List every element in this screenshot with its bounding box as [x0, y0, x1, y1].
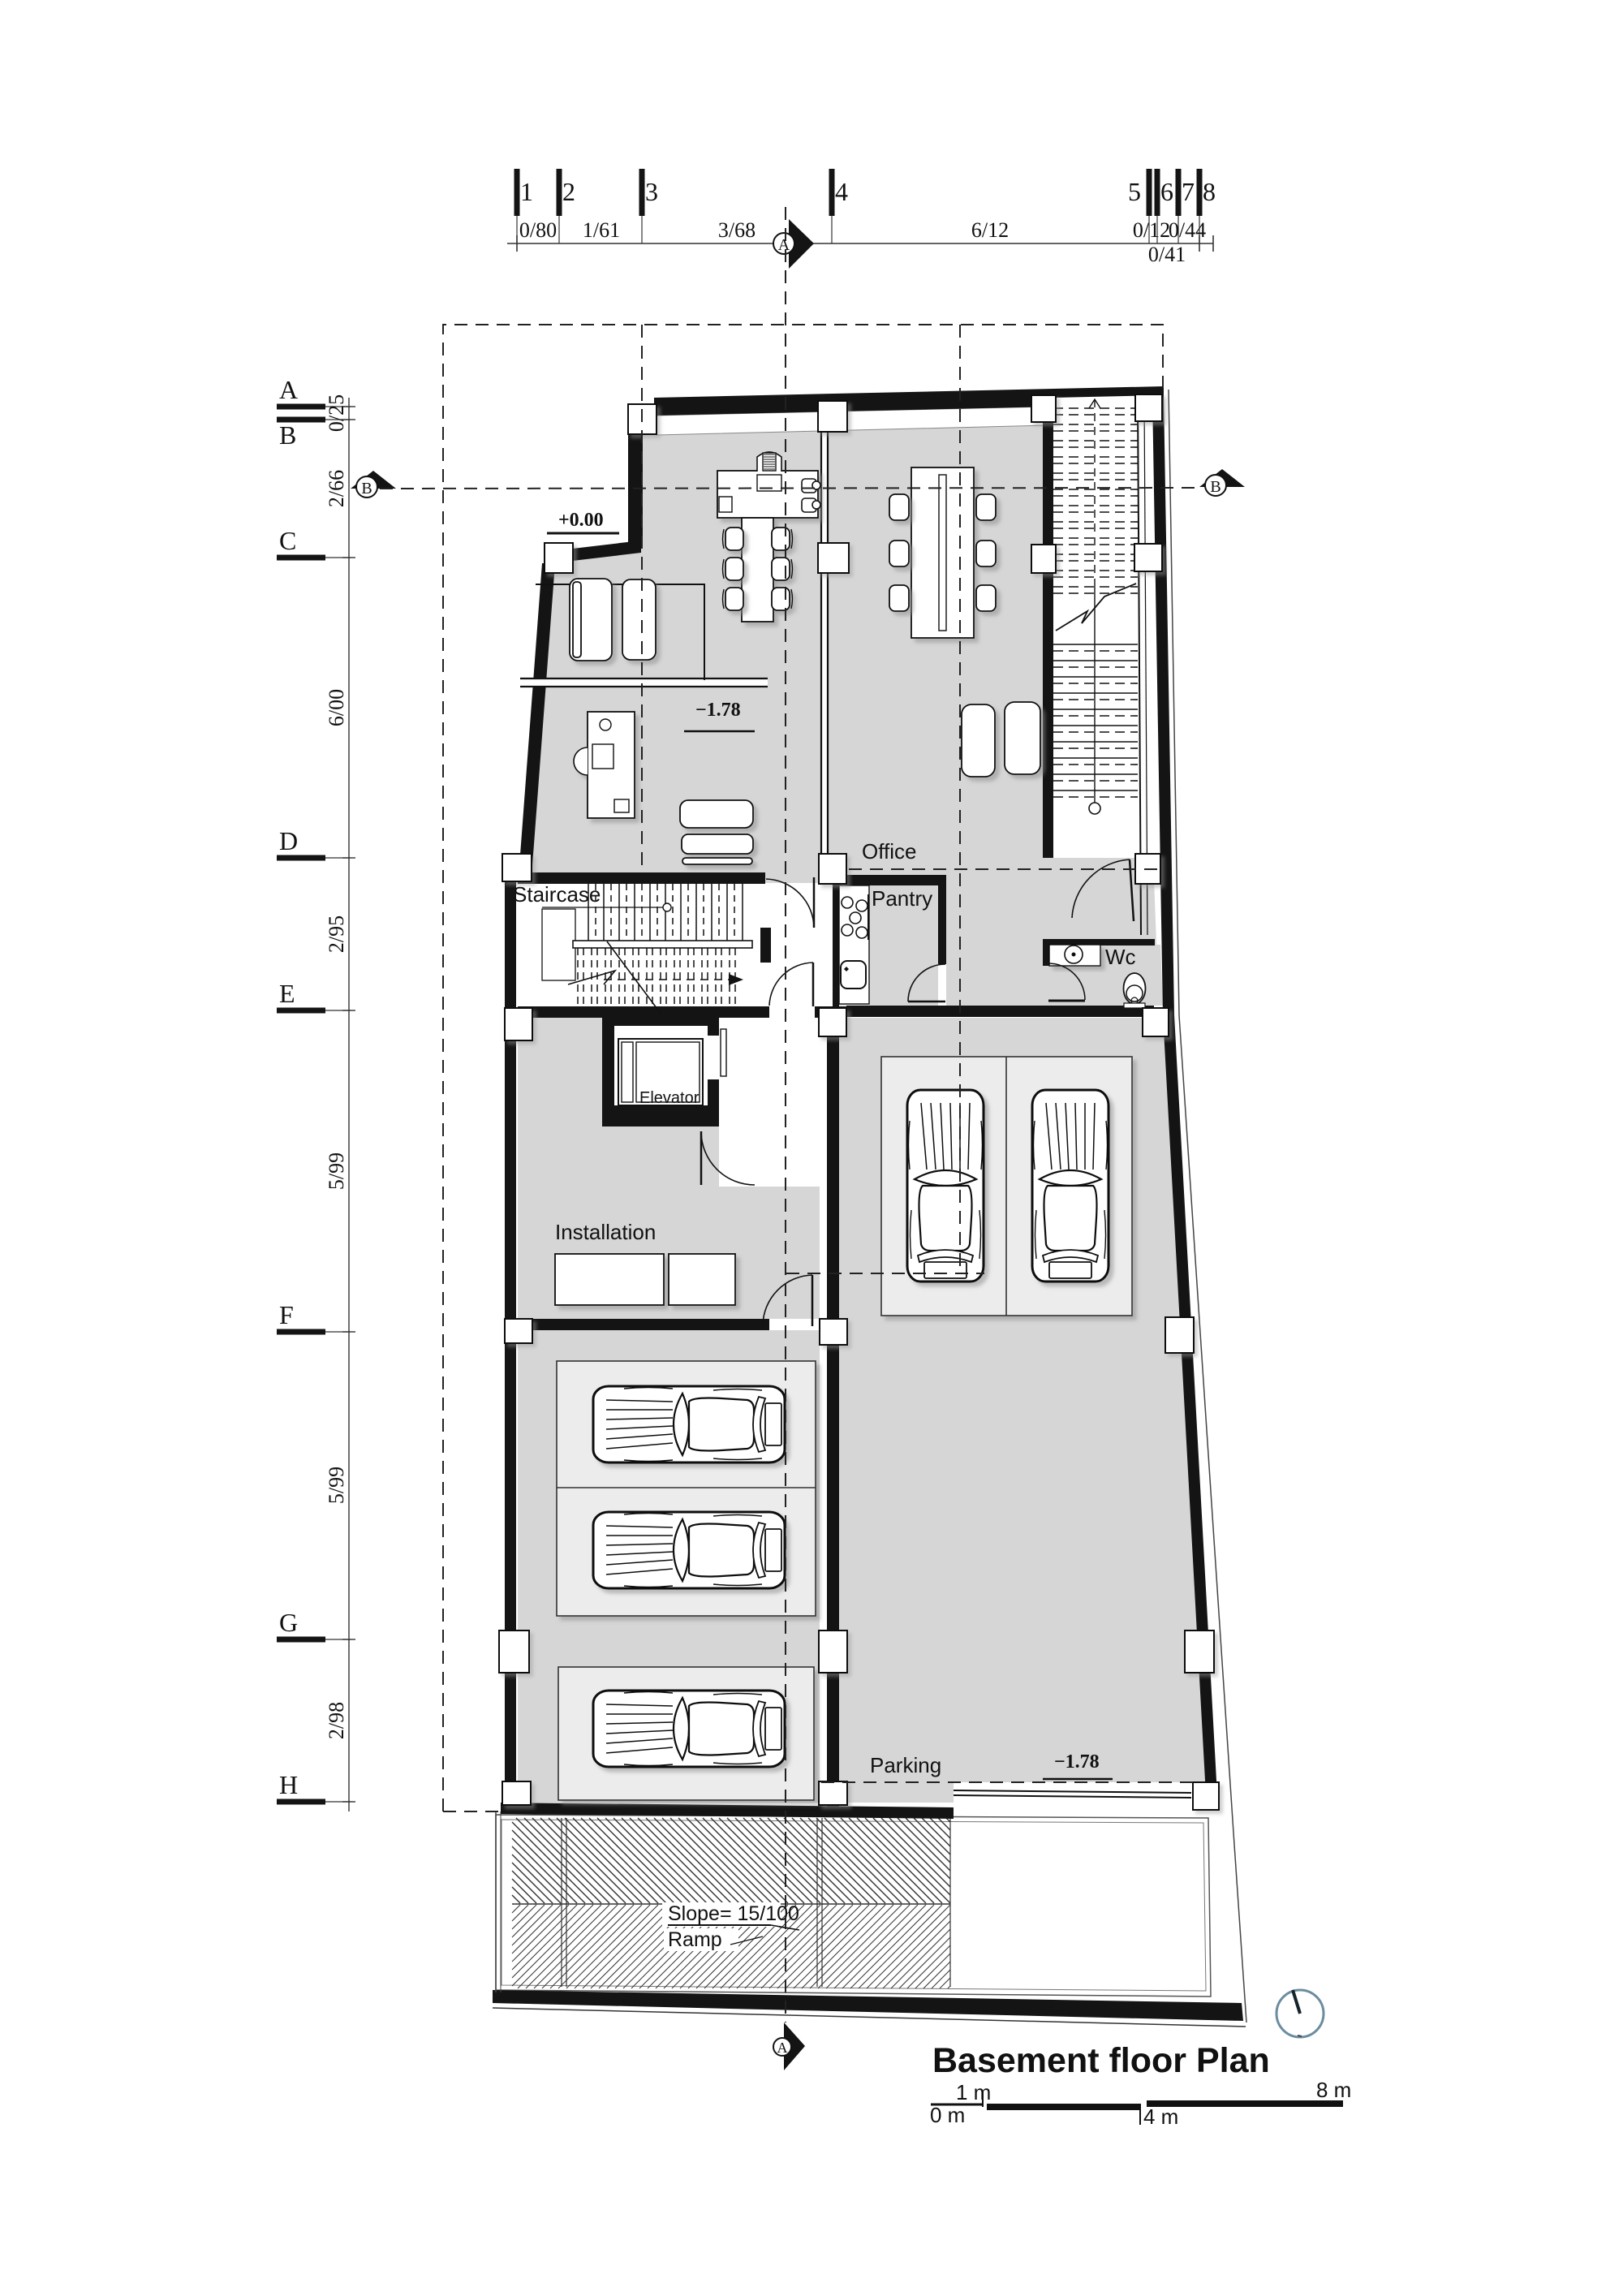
svg-text:Staircase: Staircase [513, 882, 601, 907]
svg-text:2/66: 2/66 [325, 470, 348, 507]
svg-text:0/41: 0/41 [1148, 243, 1186, 266]
svg-text:A: A [279, 375, 298, 404]
svg-text:E: E [279, 979, 295, 1008]
svg-text:0/80: 0/80 [519, 218, 557, 242]
svg-text:Installation: Installation [555, 1220, 656, 1244]
svg-text:Basement floor Plan: Basement floor Plan [932, 2041, 1270, 2080]
svg-text:4 m: 4 m [1143, 2104, 1178, 2129]
svg-text:A: A [778, 236, 790, 254]
svg-text:5/99: 5/99 [325, 1467, 348, 1504]
svg-text:Pantry: Pantry [872, 886, 932, 911]
svg-text:8 m: 8 m [1316, 2078, 1351, 2102]
svg-text:G: G [279, 1608, 298, 1637]
svg-text:8: 8 [1203, 177, 1216, 206]
svg-text:−1.78: −1.78 [695, 700, 741, 721]
svg-text:5: 5 [1128, 177, 1141, 206]
svg-text:+0.00: +0.00 [558, 510, 604, 531]
svg-text:Wc: Wc [1105, 945, 1136, 969]
svg-text:6/12: 6/12 [971, 218, 1009, 242]
svg-text:B: B [361, 480, 372, 498]
svg-text:Parking: Parking [870, 1753, 941, 1777]
svg-text:0/25: 0/25 [325, 394, 348, 432]
svg-text:Ramp: Ramp [668, 1928, 722, 1951]
svg-text:5/99: 5/99 [325, 1152, 348, 1190]
svg-text:6/00: 6/00 [325, 689, 348, 726]
svg-text:F: F [279, 1300, 294, 1329]
svg-text:B: B [279, 420, 296, 450]
svg-text:1: 1 [520, 177, 533, 206]
svg-text:0/44: 0/44 [1169, 218, 1206, 242]
svg-text:Slope= 15/100: Slope= 15/100 [668, 1902, 799, 1925]
svg-text:B: B [1210, 478, 1220, 496]
svg-text:3/68: 3/68 [718, 218, 756, 242]
svg-text:2/98: 2/98 [325, 1702, 348, 1739]
svg-text:H: H [279, 1770, 298, 1799]
svg-text:2/95: 2/95 [325, 915, 348, 953]
svg-text:A: A [777, 2040, 788, 2056]
svg-text:Office: Office [862, 839, 916, 864]
svg-text:7: 7 [1182, 177, 1195, 206]
svg-text:4: 4 [835, 177, 848, 206]
svg-text:3: 3 [645, 177, 658, 206]
svg-text:1 m: 1 m [956, 2080, 991, 2104]
svg-text:0 m: 0 m [930, 2103, 965, 2127]
svg-text:6: 6 [1160, 177, 1173, 206]
svg-text:1/61: 1/61 [583, 218, 620, 242]
svg-text:0/12: 0/12 [1133, 218, 1170, 242]
svg-text:2: 2 [562, 177, 575, 206]
svg-text:Elevator: Elevator [639, 1089, 700, 1107]
svg-text:D: D [279, 826, 298, 855]
svg-text:C: C [279, 526, 296, 555]
svg-text:−1.78: −1.78 [1054, 1751, 1100, 1773]
